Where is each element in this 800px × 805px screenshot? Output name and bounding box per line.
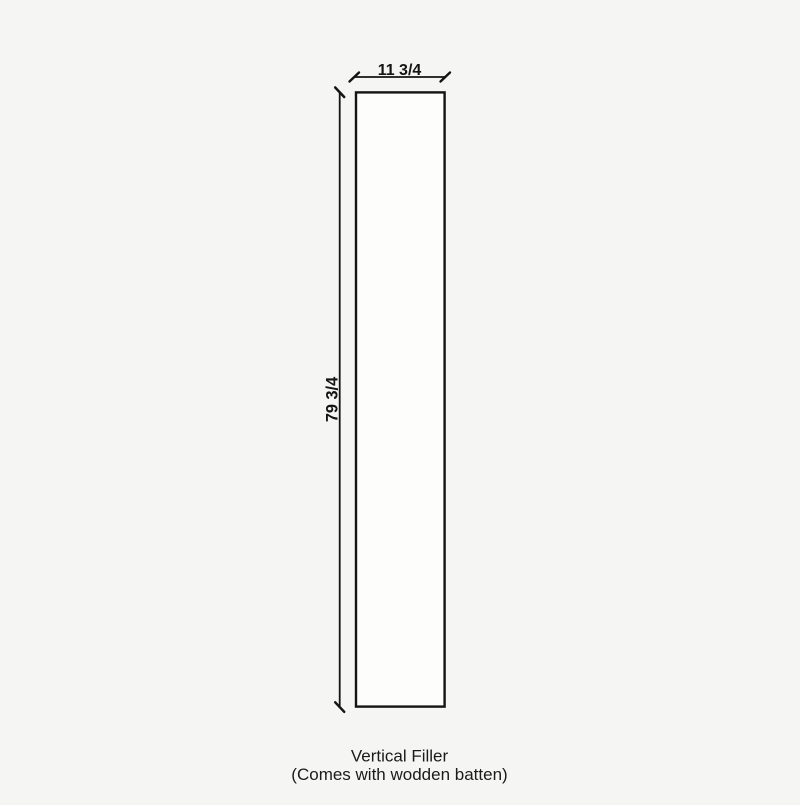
svg-text:11 3/4: 11 3/4 — [378, 62, 422, 79]
svg-text:(Comes with wodden batten): (Comes with wodden batten) — [291, 765, 507, 784]
svg-text:79 3/4: 79 3/4 — [323, 377, 341, 422]
svg-text:Vertical Filler: Vertical Filler — [351, 747, 449, 766]
